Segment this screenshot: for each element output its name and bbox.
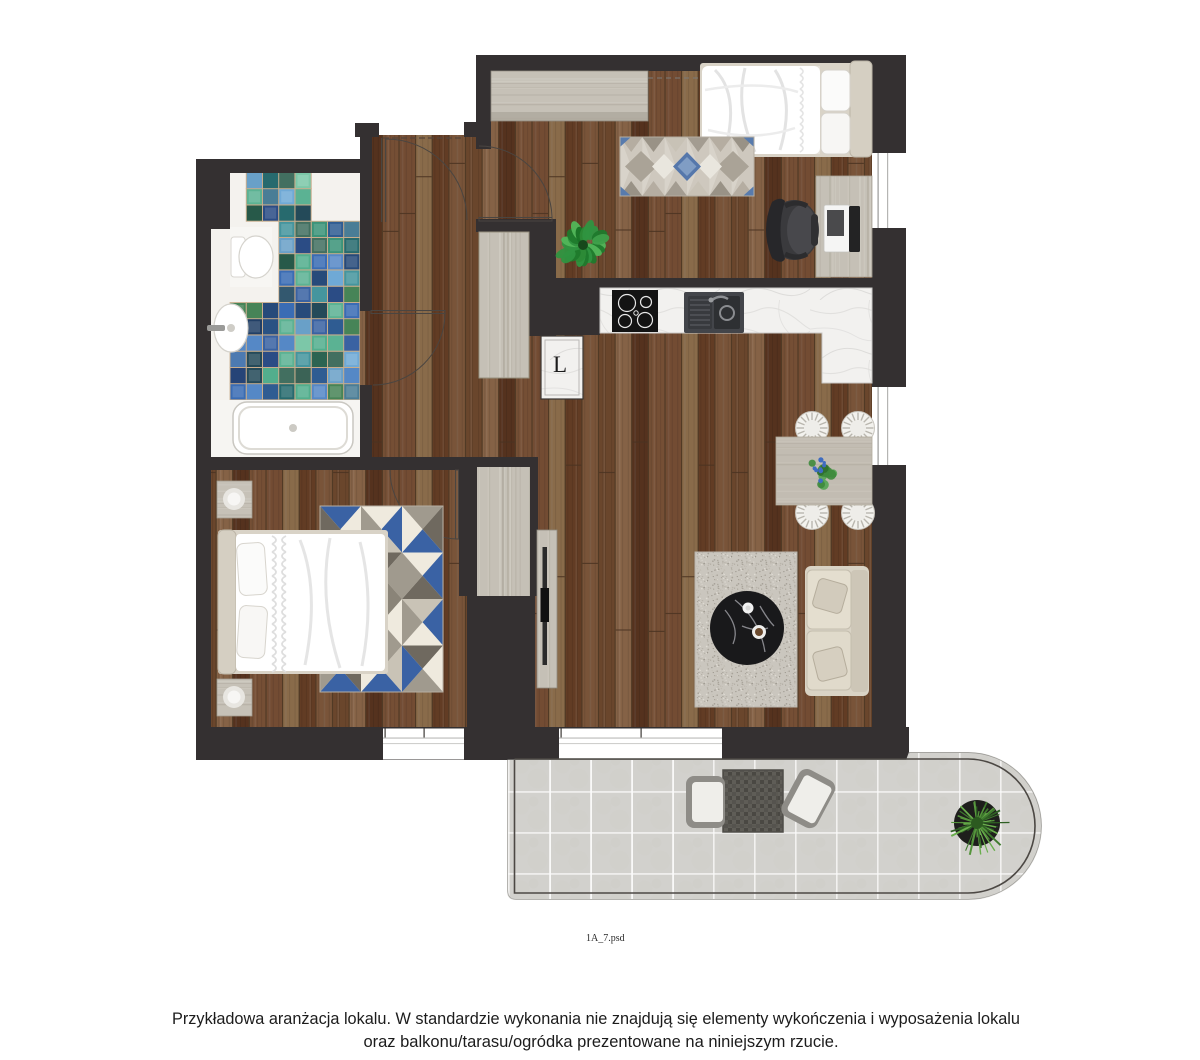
svg-text:Przykładowa aranżacja lokalu.: Przykładowa aranżacja lokalu. W standard…: [172, 1010, 1020, 1028]
svg-text:oraz balkonu/tarasu/ogródka pr: oraz balkonu/tarasu/ogródka prezentowane…: [363, 1033, 838, 1051]
svg-text:L: L: [553, 352, 567, 377]
svg-text:1A_7.psd: 1A_7.psd: [586, 933, 625, 944]
